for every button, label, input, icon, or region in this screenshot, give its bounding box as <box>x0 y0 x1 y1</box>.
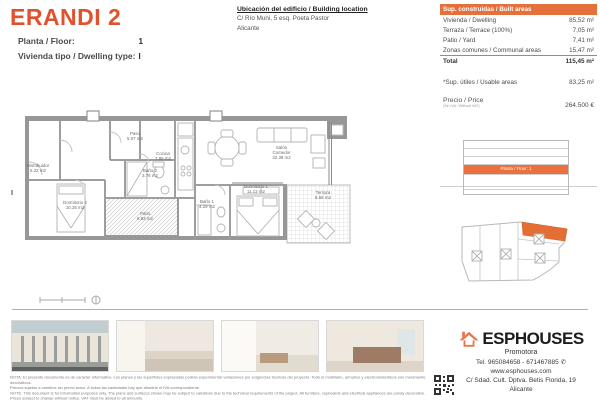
photo-building-exterior <box>11 320 109 372</box>
price-row: Precio / Price (Sin IVA / Without VAT) 2… <box>440 97 597 113</box>
patio-shaft-icon <box>472 234 545 263</box>
whatsapp-icon: ✆ <box>561 358 566 366</box>
usable-label: *Sup. útiles / Usable areas <box>443 79 517 86</box>
bathroom-fixtures-icon <box>198 205 225 235</box>
room-label-paso: Paso 5.07 m2 <box>113 131 157 141</box>
price-label: Precio / Price <box>443 97 524 104</box>
floor-label: Planta / Floor: <box>18 36 136 46</box>
total-value: 115,45 m² <box>566 58 594 65</box>
row-label: Patio / Yard <box>443 37 475 44</box>
elevation-floor <box>464 156 568 164</box>
tv-unit-icon <box>311 135 325 168</box>
bed-icon <box>237 196 279 236</box>
legal-line: Prices subject to change without notice.… <box>10 396 440 400</box>
table-row: Patio / Yard 7,41 m² <box>440 35 597 45</box>
built-areas-header: Sup. construidas / Built areas <box>440 4 597 15</box>
dwelling-type-value: I <box>138 51 140 61</box>
office-address: C/ Sdad. Cult. Dptva. Betis Florida, 19 <box>448 377 594 384</box>
row-label: Zonas comunes / Communal areas <box>443 47 541 54</box>
dwelling-type-label: Vivienda tipo / Dwelling type: <box>18 51 136 61</box>
unit-letter: I <box>11 188 13 197</box>
row-value: 85,52 m² <box>569 17 594 24</box>
row-label: Terraza / Terrace (100%) <box>443 27 512 34</box>
elevation-floor <box>464 174 568 189</box>
legal-text: NOTA: El presente documento es de caráct… <box>10 375 440 400</box>
elevation-floor <box>464 148 568 156</box>
location-street: C/ Río Muni, 5 esq. Poeta Pastor <box>237 15 368 23</box>
location-title: Ubicación del edificio / Building locati… <box>237 6 368 13</box>
dwelling-type-row: Vivienda tipo / Dwelling type: I <box>18 51 141 61</box>
table-row: Terraza / Terrace (100%) 7,05 m² <box>440 25 597 35</box>
highlighted-unit-footprint <box>522 222 567 241</box>
table-row: Zonas comunes / Communal areas 15,47 m² <box>440 45 597 55</box>
room-label-salon: Salón Comedor 22.38 m2 <box>265 145 298 160</box>
location-city: Alicante <box>237 25 368 33</box>
elevation-floor-label: Planta / Floor: 1 <box>464 166 568 171</box>
building-elevation-diagram: Planta / Floor: 1 <box>463 140 569 195</box>
row-value: 7,05 m² <box>573 27 594 34</box>
built-areas-table: Sup. construidas / Built areas Vivienda … <box>440 4 597 66</box>
room-label-dormitorio1: Dormitorio 1 11.12 m2 <box>234 184 278 194</box>
brand-name: ESPHOUSES <box>482 329 583 349</box>
brochure-page: ERANDI 2 Planta / Floor: 1 Vivienda tipo… <box>0 0 600 400</box>
legal-line: NOTA: El presente documento es de caráct… <box>10 375 440 386</box>
site-plan-diagram <box>455 217 573 289</box>
room-label-bano2: Baño 2 3.76 m2 <box>128 168 172 178</box>
developer-brand-block: ESPHOUSES Promotora Tel. 965084658 - 671… <box>448 329 594 393</box>
floor-row: Planta / Floor: 1 <box>18 36 143 46</box>
website: www.esphouses.com <box>448 368 594 375</box>
price-value: 264.500 € <box>565 102 594 109</box>
photo-living-room <box>116 320 214 372</box>
dining-table-icon <box>208 130 246 166</box>
table-total-row: Total 115,45 m² <box>440 55 597 66</box>
sofa-icon <box>257 128 307 142</box>
usable-area-row: *Sup. útiles / Usable areas 83,25 m² <box>440 79 597 86</box>
scale-bar-icon <box>40 296 100 304</box>
brand-subtitle: Promotora <box>448 349 594 356</box>
phone-numbers: Tel. 965084658 - 671467885 <box>476 359 559 366</box>
usable-value: 83,25 m² <box>569 79 594 86</box>
photo-kitchen-dining <box>221 320 319 372</box>
room-label-dormitorio2: Dormitorio 2 10.25 m2 <box>53 200 97 210</box>
esphouses-house-icon <box>458 329 480 349</box>
elevation-floor-highlighted: Planta / Floor: 1 <box>464 164 568 174</box>
orange-divider <box>12 309 588 310</box>
price-sublabel: (Sin IVA / Without VAT) <box>443 104 480 108</box>
room-label-terraza: Terraza 8.58 m2 <box>301 190 345 200</box>
room-label-bano1: Baño 1 4.29 m2 <box>185 199 229 209</box>
photo-bedroom <box>326 320 424 372</box>
total-label: Total <box>443 58 458 65</box>
room-label-distribuidor: Distribuidor 5.22 m2 <box>16 163 60 173</box>
elevation-floor <box>464 141 568 148</box>
row-label: Vivienda / Dwelling <box>443 17 496 24</box>
elevation-floor <box>464 189 568 197</box>
floor-value: 1 <box>138 36 143 46</box>
row-value: 15,47 m² <box>569 47 594 54</box>
table-row: Vivienda / Dwelling 85,52 m² <box>440 15 597 25</box>
page-title: ERANDI 2 <box>10 4 121 31</box>
building-location: Ubicación del edificio / Building locati… <box>237 6 368 33</box>
room-label-patio: Patio 6.83 m2 <box>123 211 167 221</box>
row-value: 7,41 m² <box>573 37 594 44</box>
room-label-cocina: Cocina 7.85 m2 <box>141 151 185 161</box>
office-city: Alicante <box>448 386 594 393</box>
